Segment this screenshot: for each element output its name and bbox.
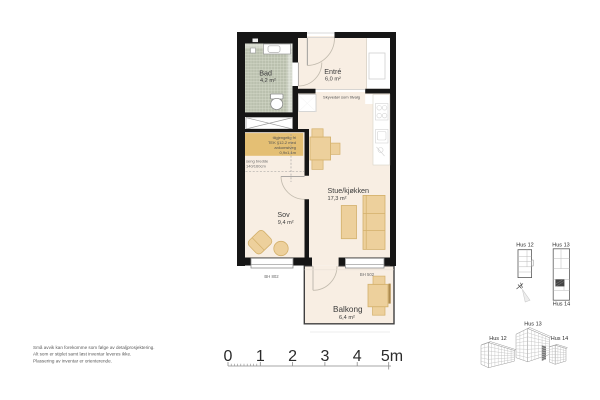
svg-text:BH 802: BH 802 — [264, 274, 279, 279]
svg-text:Små avvik kan forekomme som fø: Små avvik kan forekomme som følge av det… — [33, 344, 155, 350]
svg-text:5m: 5m — [381, 348, 403, 365]
svg-text:BH 502: BH 502 — [360, 272, 375, 277]
svg-text:Hus 14: Hus 14 — [553, 302, 570, 308]
svg-text:Alt som er stiplet samt løst i: Alt som er stiplet samt løst inventar le… — [33, 352, 131, 357]
svg-text:Stue/kjøkken: Stue/kjøkken — [328, 186, 370, 195]
svg-text:Hus 13: Hus 13 — [552, 243, 569, 249]
svg-text:Entré: Entré — [324, 67, 341, 76]
svg-text:Hus 14: Hus 14 — [551, 336, 568, 342]
svg-text:Hus 12: Hus 12 — [516, 243, 533, 249]
svg-text:6,4 m²: 6,4 m² — [339, 315, 355, 321]
svg-text:0,9x1,1m: 0,9x1,1m — [280, 150, 297, 155]
svg-text:4,2 m²: 4,2 m² — [260, 78, 276, 84]
svg-text:Skyvedør som tilvalg: Skyvedør som tilvalg — [323, 95, 360, 100]
svg-text:Balkong: Balkong — [333, 305, 363, 314]
svg-text:9,4 m²: 9,4 m² — [278, 220, 294, 226]
svg-text:Hus 12: Hus 12 — [489, 336, 506, 342]
svg-text:140/160cm: 140/160cm — [246, 164, 266, 169]
svg-text:Hus 13: Hus 13 — [524, 322, 541, 328]
svg-text:17,3 m²: 17,3 m² — [328, 196, 347, 202]
svg-text:Plassering av inventar er orie: Plassering av inventar er orienterende. — [33, 358, 112, 363]
svg-text:Bad: Bad — [259, 68, 272, 77]
svg-text:Sov: Sov — [277, 210, 290, 219]
svg-text:6,0 m²: 6,0 m² — [325, 77, 341, 83]
